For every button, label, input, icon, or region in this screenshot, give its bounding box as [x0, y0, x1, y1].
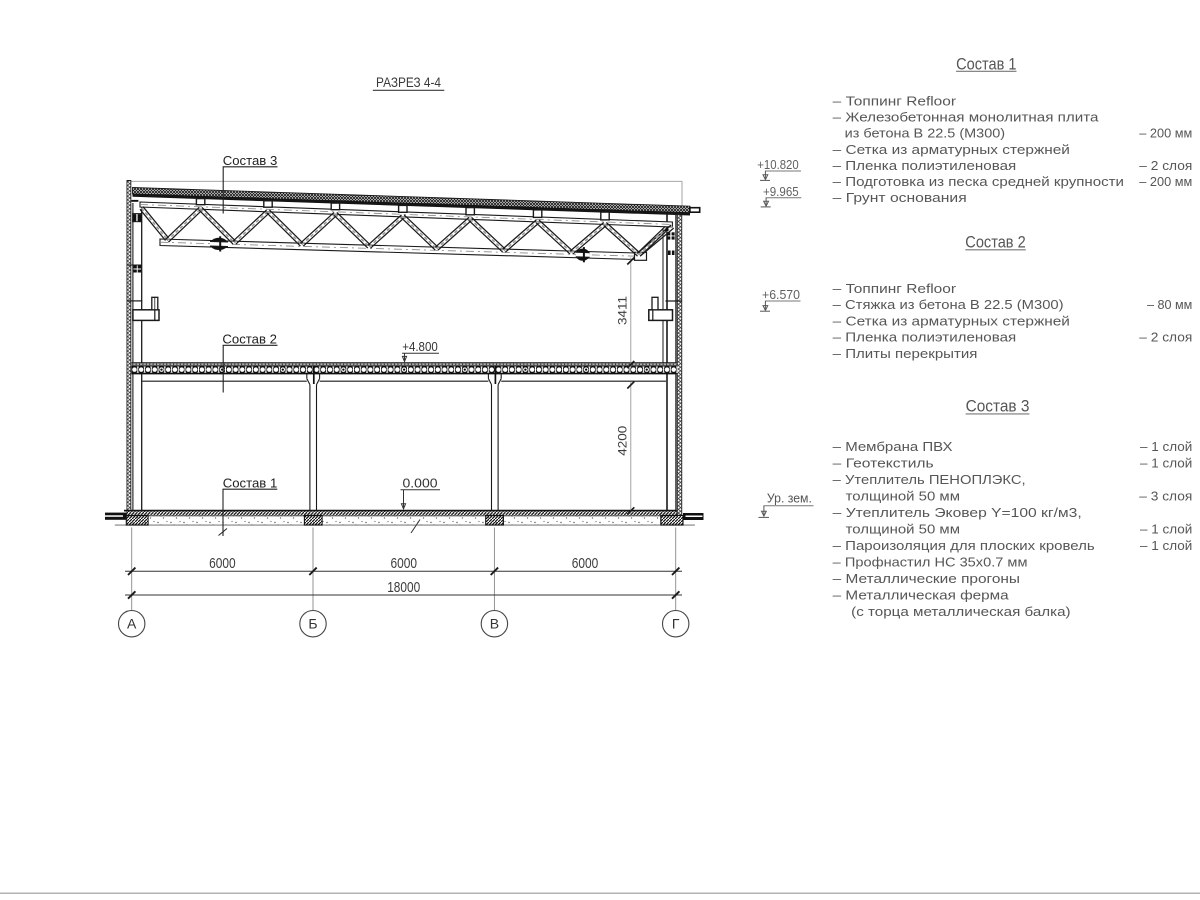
svg-text:– 200 мм: – 200 мм — [1139, 126, 1192, 141]
svg-text:В: В — [490, 616, 499, 632]
svg-text:Состав 3: Состав 3 — [966, 397, 1030, 416]
svg-text:18000: 18000 — [387, 580, 420, 596]
svg-text:– Пароизоляция для плоских кро: – Пароизоляция для плоских кровель — [833, 538, 1095, 553]
svg-text:6000: 6000 — [390, 556, 417, 572]
svg-text:– Сетка из арматурных стержней: – Сетка из арматурных стержней — [833, 313, 1070, 328]
svg-text:– Профнастил НС 35х0.7 мм: – Профнастил НС 35х0.7 мм — [833, 555, 1028, 570]
svg-text:– Утеплитель Эковер Y=100 кг/м: – Утеплитель Эковер Y=100 кг/м3, — [833, 505, 1082, 520]
svg-text:– Металлические прогоны: – Металлические прогоны — [833, 571, 1020, 586]
svg-text:– Стяжка из бетона В 22.5 (М30: – Стяжка из бетона В 22.5 (М300) — [833, 297, 1064, 312]
svg-text:– 200 мм: – 200 мм — [1139, 174, 1192, 189]
svg-text:РАЗРЕЗ 4-4: РАЗРЕЗ 4-4 — [376, 75, 441, 90]
svg-text:– 2 слоя: – 2 слоя — [1139, 330, 1192, 345]
svg-text:– Подготовка из песка средней: – Подготовка из песка средней крупности — [833, 174, 1124, 189]
svg-text:– 1 слой: – 1 слой — [1140, 538, 1192, 553]
svg-text:– 1 слой: – 1 слой — [1140, 439, 1192, 454]
svg-text:+10.820: +10.820 — [757, 157, 798, 172]
svg-text:0.000: 0.000 — [403, 476, 438, 491]
svg-text:Состав 2: Состав 2 — [965, 233, 1025, 252]
svg-text:– Грунт основания: – Грунт основания — [833, 190, 967, 205]
svg-text:– Пленка полиэтиленовая: – Пленка полиэтиленовая — [833, 330, 1017, 345]
svg-text:толщиной 50 мм: толщиной 50 мм — [846, 522, 960, 537]
svg-text:– Железобетонная монолитная п: – Железобетонная монолитная плита — [833, 110, 1100, 125]
svg-text:+6.570: +6.570 — [762, 287, 800, 302]
svg-text:6000: 6000 — [572, 556, 599, 572]
svg-text:– Топпинг Refloor: – Топпинг Refloor — [833, 94, 957, 109]
svg-text:Состав 1: Состав 1 — [956, 54, 1016, 73]
svg-text:+9.965: +9.965 — [763, 184, 799, 199]
svg-text:3411: 3411 — [616, 296, 630, 325]
svg-text:толщиной 50 мм: толщиной 50 мм — [846, 489, 960, 504]
svg-text:– 2 слоя: – 2 слоя — [1139, 158, 1192, 173]
svg-text:– Топпинг Refloor: – Топпинг Refloor — [833, 281, 957, 296]
svg-text:Состав 2: Состав 2 — [222, 331, 277, 346]
svg-text:Г: Г — [672, 616, 680, 632]
svg-text:– 1 слой: – 1 слой — [1140, 456, 1192, 471]
svg-text:– 3 слоя: – 3 слоя — [1139, 489, 1192, 504]
svg-text:из бетона В 22.5 (М300): из бетона В 22.5 (М300) — [845, 126, 1005, 141]
svg-text:А: А — [127, 616, 137, 632]
svg-text:– Металлическая ферма: – Металлическая ферма — [833, 588, 1010, 603]
svg-text:– Утеплитель ПЕНОПЛЭКС,: – Утеплитель ПЕНОПЛЭКС, — [833, 472, 1026, 487]
svg-text:Состав 3: Состав 3 — [223, 153, 278, 168]
svg-text:+4.800: +4.800 — [402, 339, 438, 354]
svg-text:(с торца металлическая балка): (с торца металлическая балка) — [851, 604, 1070, 619]
svg-text:4200: 4200 — [616, 426, 630, 456]
svg-text:Состав 1: Состав 1 — [223, 475, 278, 490]
svg-text:– Пленка полиэтиленовая: – Пленка полиэтиленовая — [833, 158, 1017, 173]
svg-text:Ур. зем.: Ур. зем. — [767, 491, 812, 506]
svg-text:– Сетка из арматурных стержней: – Сетка из арматурных стержней — [833, 142, 1070, 157]
svg-text:– 80 мм: – 80 мм — [1147, 297, 1192, 312]
svg-text:– Плиты перекрытия: – Плиты перекрытия — [833, 346, 978, 361]
svg-text:– Мембрана ПВХ: – Мембрана ПВХ — [833, 439, 953, 454]
svg-text:– Геотекстиль: – Геотекстиль — [833, 456, 934, 471]
svg-text:Б: Б — [308, 616, 317, 632]
svg-text:6000: 6000 — [209, 556, 236, 572]
svg-text:– 1 слой: – 1 слой — [1140, 522, 1192, 537]
